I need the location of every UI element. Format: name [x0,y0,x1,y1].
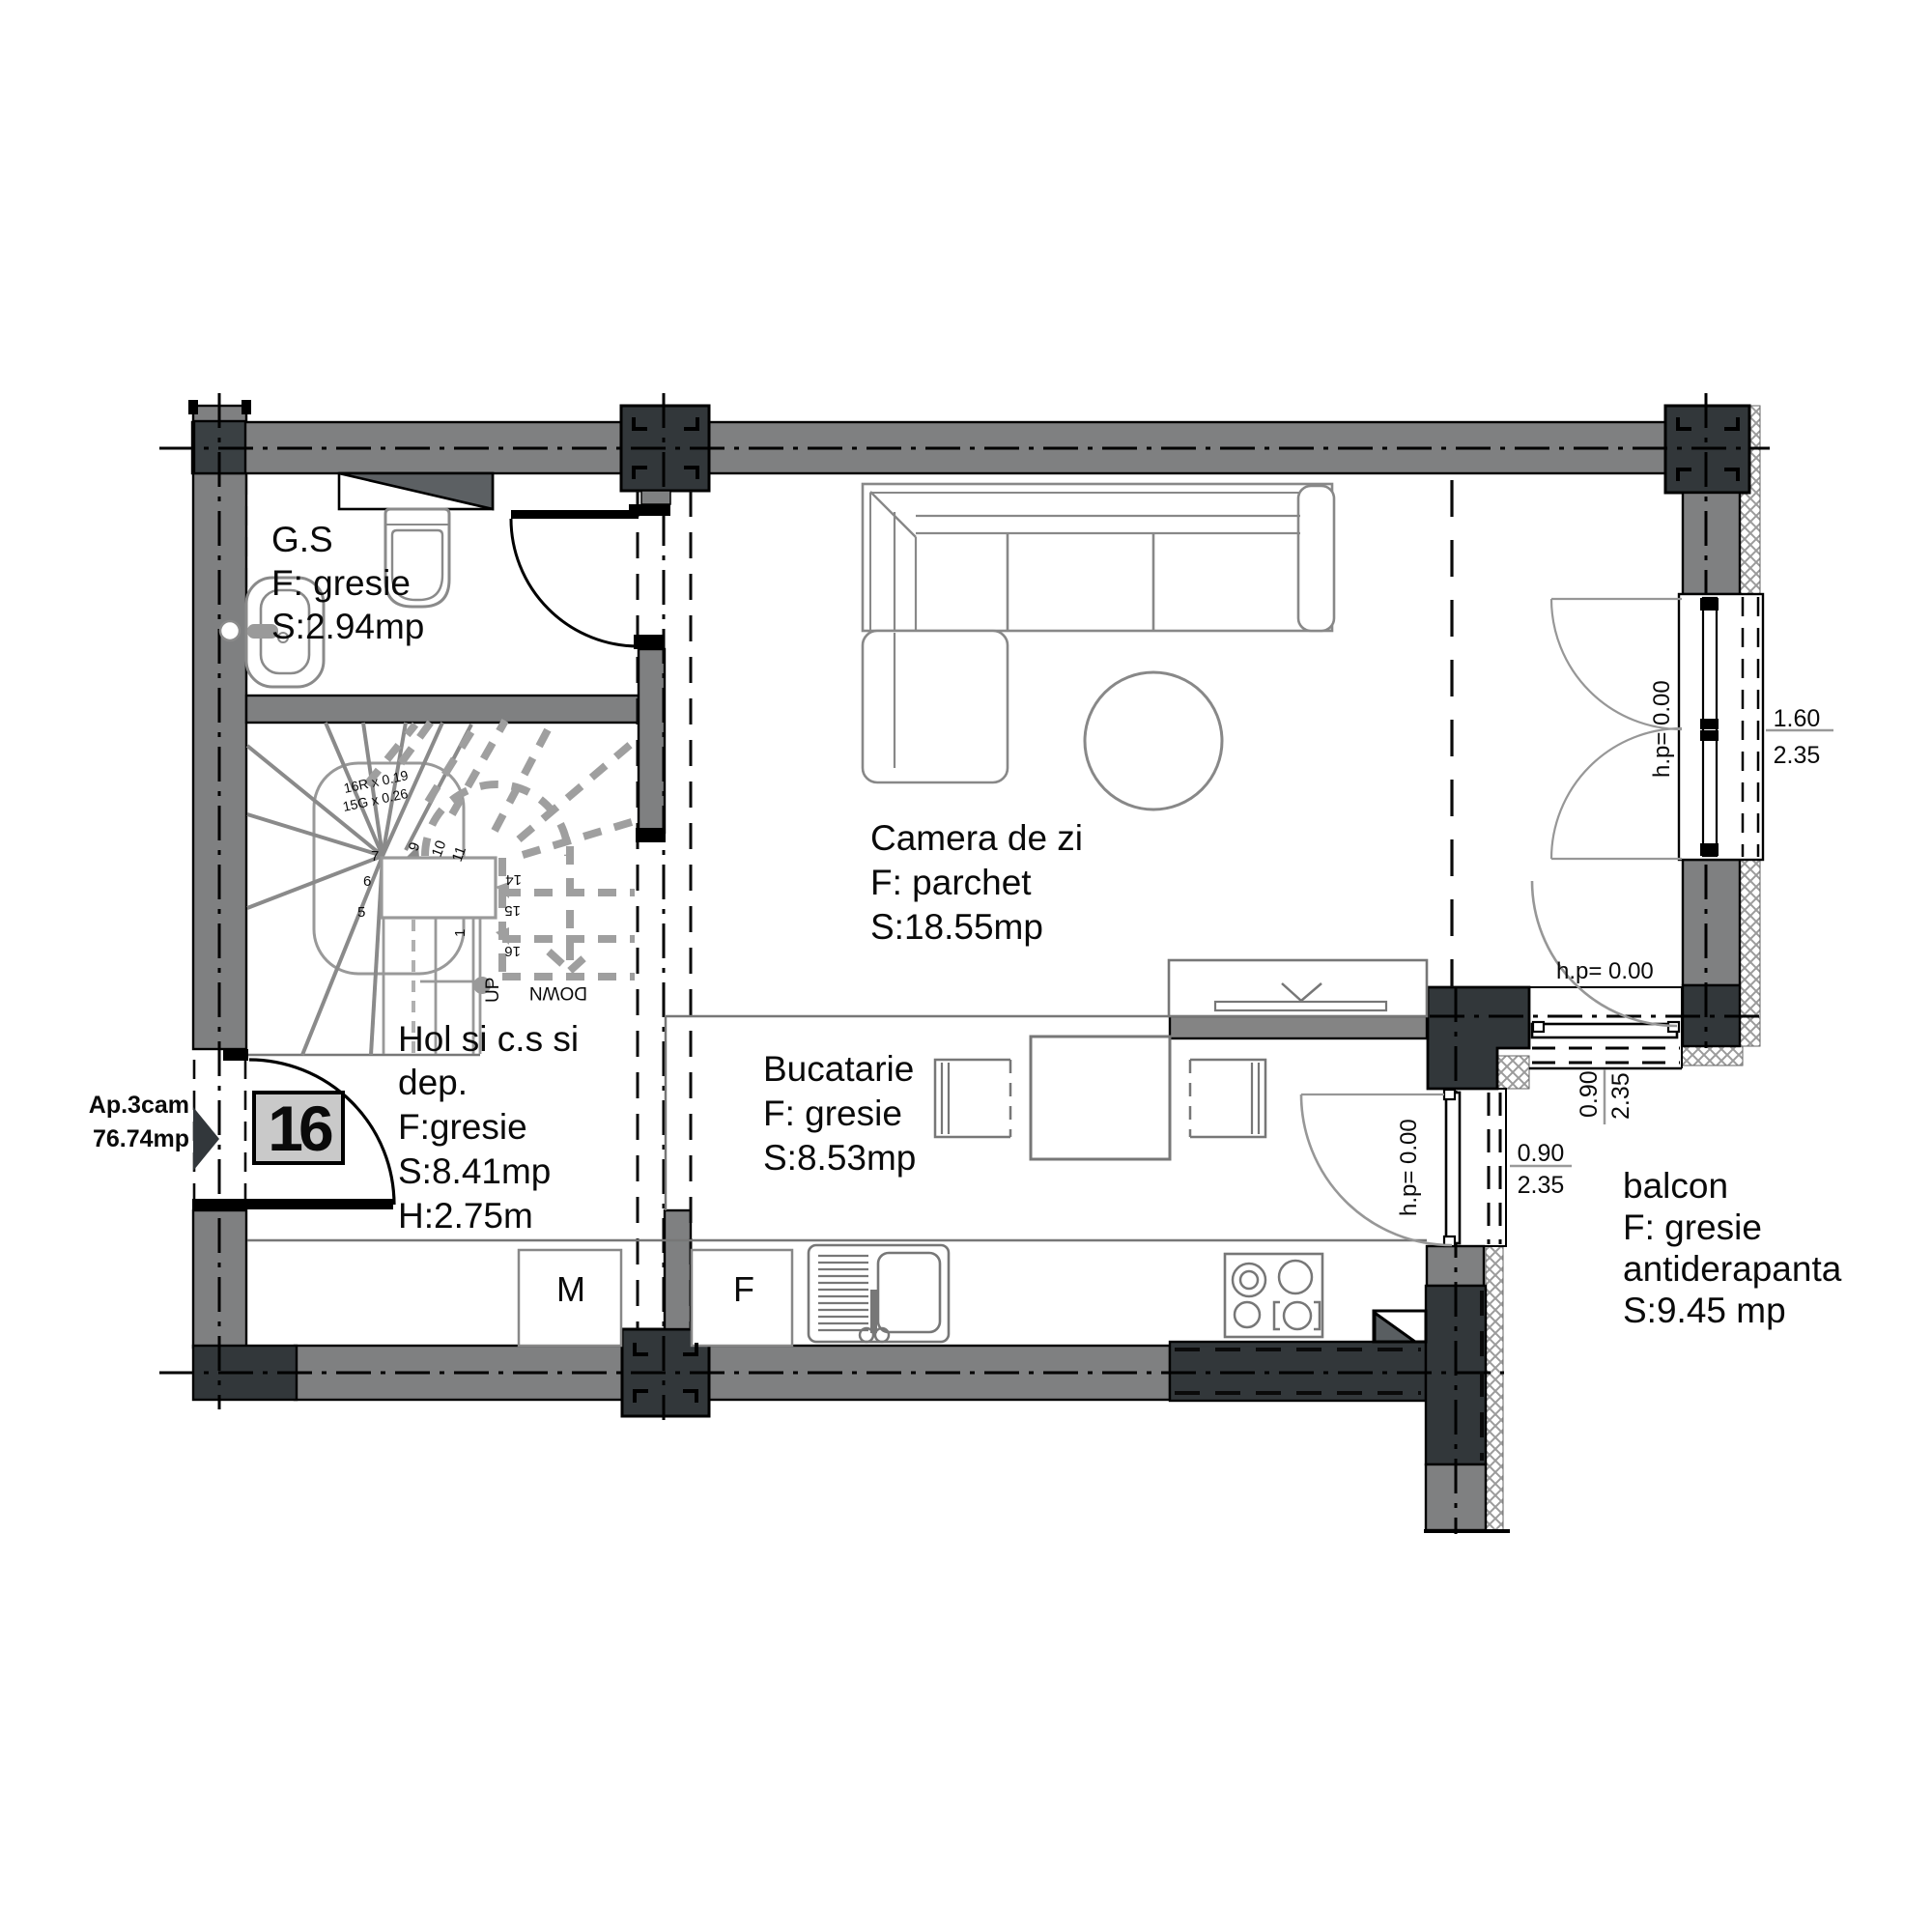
svg-text:Hol si c.s si: Hol si c.s si [398,1019,579,1059]
svg-text:2.35: 2.35 [1607,1072,1634,1120]
svg-text:M: M [556,1269,585,1309]
svg-text:S:18.55mp: S:18.55mp [870,907,1043,947]
svg-text:Bucatarie: Bucatarie [763,1049,914,1089]
svg-text:S:9.45 mp: S:9.45 mp [1623,1291,1786,1330]
svg-text:F: gresie: F: gresie [271,563,411,603]
svg-text:h.p= 0.00: h.p= 0.00 [1396,1119,1422,1216]
svg-text:7: 7 [371,848,379,865]
svg-text:15: 15 [504,902,521,919]
svg-text:antiderapanta: antiderapanta [1623,1249,1842,1289]
svg-text:2.35: 2.35 [1518,1172,1565,1199]
svg-text:6: 6 [363,873,371,890]
svg-text:DOWN: DOWN [529,982,587,1003]
svg-text:F:gresie: F:gresie [398,1107,527,1147]
svg-text:0.90: 0.90 [1518,1140,1565,1167]
svg-text:14: 14 [505,871,522,888]
svg-text:Ap.3cam: Ap.3cam [89,1092,189,1119]
svg-text:S:8.53mp: S:8.53mp [763,1138,916,1178]
svg-text:Camera de zi: Camera de zi [870,818,1083,858]
svg-text:UP: UP [483,978,503,1003]
svg-text:balcon: balcon [1623,1166,1728,1206]
svg-text:F: parchet: F: parchet [870,863,1032,902]
svg-text:F: gresie: F: gresie [1623,1207,1762,1247]
svg-text:76.74mp: 76.74mp [93,1125,189,1152]
svg-text:16: 16 [268,1093,332,1164]
svg-text:S:8.41mp: S:8.41mp [398,1151,551,1191]
svg-text:16: 16 [504,943,521,959]
svg-text:2.35: 2.35 [1774,742,1821,769]
svg-text:5: 5 [357,904,365,921]
svg-text:S:2.94mp: S:2.94mp [271,607,424,646]
svg-text:H:2.75m: H:2.75m [398,1196,533,1236]
svg-text:1.60: 1.60 [1774,705,1821,732]
svg-text:h.p= 0.00: h.p= 0.00 [1556,958,1654,984]
svg-text:1: 1 [452,929,469,937]
svg-text:h.p= 0.00: h.p= 0.00 [1649,680,1675,778]
svg-text:0.90: 0.90 [1576,1070,1603,1118]
svg-text:dep.: dep. [398,1063,468,1102]
svg-text:F: gresie: F: gresie [763,1094,902,1133]
svg-text:F: F [733,1269,754,1309]
svg-text:G.S: G.S [271,520,333,559]
